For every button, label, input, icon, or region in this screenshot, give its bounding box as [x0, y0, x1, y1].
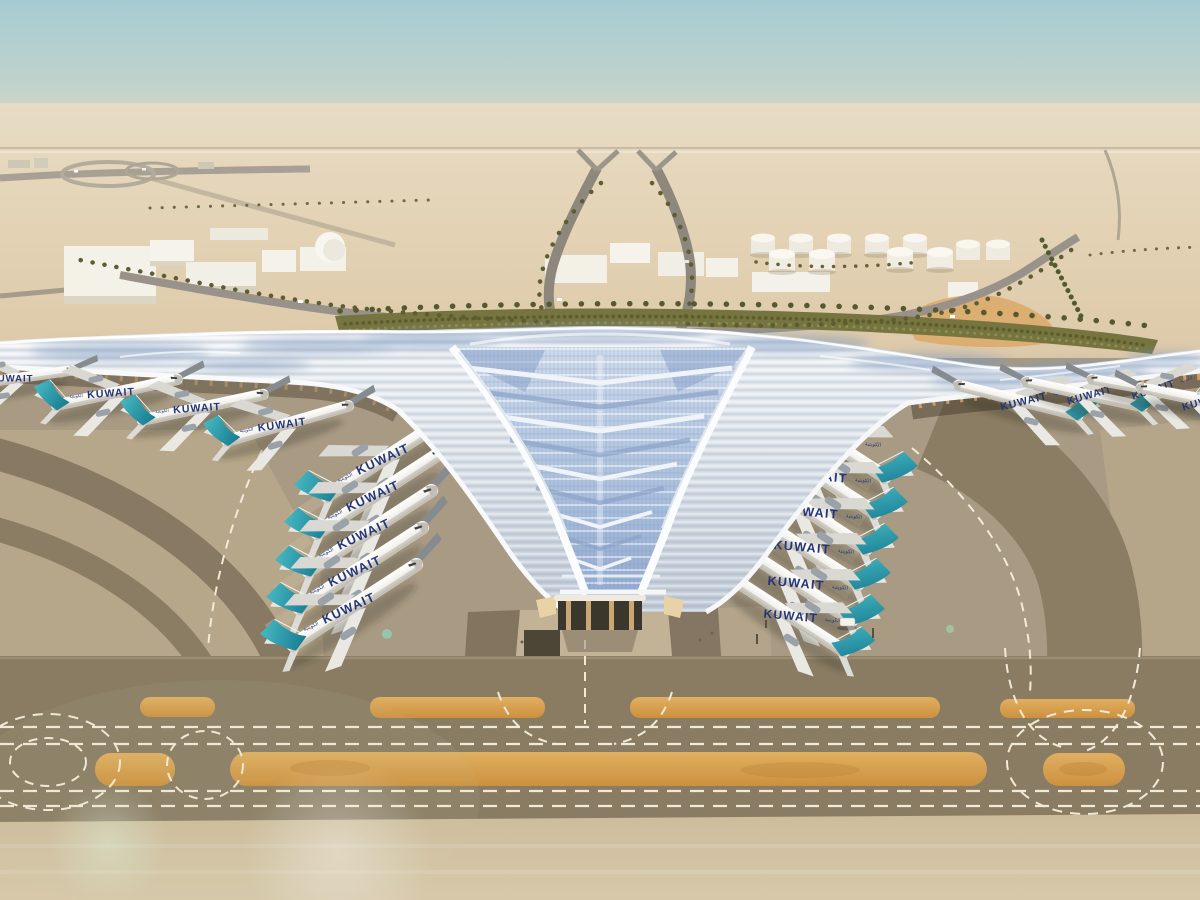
distant-vehicle: [74, 170, 78, 173]
amber-mottle: [1059, 762, 1107, 776]
amber-strip: [630, 697, 940, 718]
entrance-column: [629, 600, 634, 630]
warehouse: [610, 243, 650, 263]
scene-canvas: KUWAIT الكويتية KUWAIT الكويتية: [0, 0, 1200, 900]
vehicle-on-road: [557, 298, 562, 301]
flare-medium: [48, 782, 168, 900]
warehouse: [210, 228, 268, 240]
distant-vehicle: [142, 168, 146, 171]
distant-building: [34, 158, 48, 168]
service-van: [837, 618, 857, 631]
entrance-canopy: [554, 595, 646, 601]
flare-dot-cyan: [382, 629, 392, 639]
vehicle-on-road: [684, 260, 689, 263]
entrance-shadow: [562, 630, 638, 652]
warehouse-long: [752, 272, 830, 292]
warehouse: [658, 252, 704, 276]
amber-mottle: [740, 762, 860, 778]
ground-equipment-dot: [711, 632, 714, 635]
airport-aerial-rendering: KUWAIT الكويتية KUWAIT الكويتية: [0, 0, 1200, 900]
warehouse: [262, 250, 296, 272]
vehicle-on-road: [298, 300, 303, 303]
distant-building: [8, 160, 30, 168]
ground-equipment-dot: [699, 639, 702, 642]
vehicle-on-road: [950, 315, 955, 318]
flare-dot-green: [946, 625, 954, 633]
distant-building: [198, 162, 214, 169]
entrance-column: [609, 600, 614, 630]
amber-strip: [1000, 699, 1135, 718]
entrance-column: [586, 600, 591, 630]
warehouse: [706, 258, 738, 277]
ground-equipment-dot: [521, 641, 524, 644]
entrance-column: [566, 600, 571, 630]
